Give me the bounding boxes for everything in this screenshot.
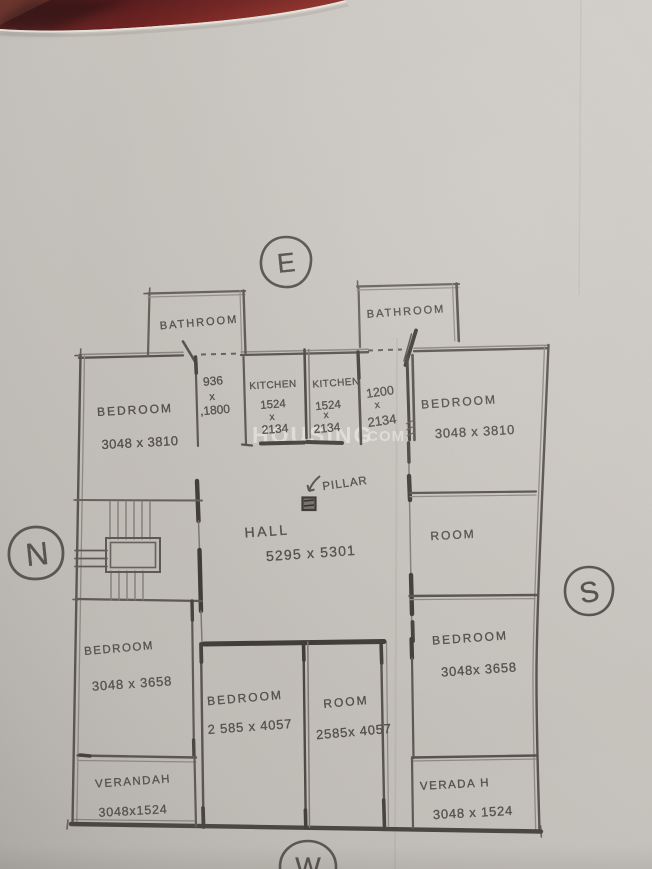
svg-text:HALL: HALL	[244, 521, 290, 540]
svg-text:1524: 1524	[315, 399, 342, 413]
svg-text:.COM: .COM	[362, 428, 405, 445]
svg-text:ROOM: ROOM	[430, 527, 476, 543]
svg-text:E: E	[276, 247, 297, 279]
svg-text:2134: 2134	[261, 421, 289, 437]
svg-text:936: 936	[202, 373, 223, 389]
svg-text:,1800: ,1800	[199, 402, 230, 419]
svg-text:2134: 2134	[313, 420, 341, 436]
svg-text:1524: 1524	[260, 398, 287, 412]
svg-text:N: N	[24, 535, 51, 573]
svg-text:x: x	[323, 410, 329, 421]
